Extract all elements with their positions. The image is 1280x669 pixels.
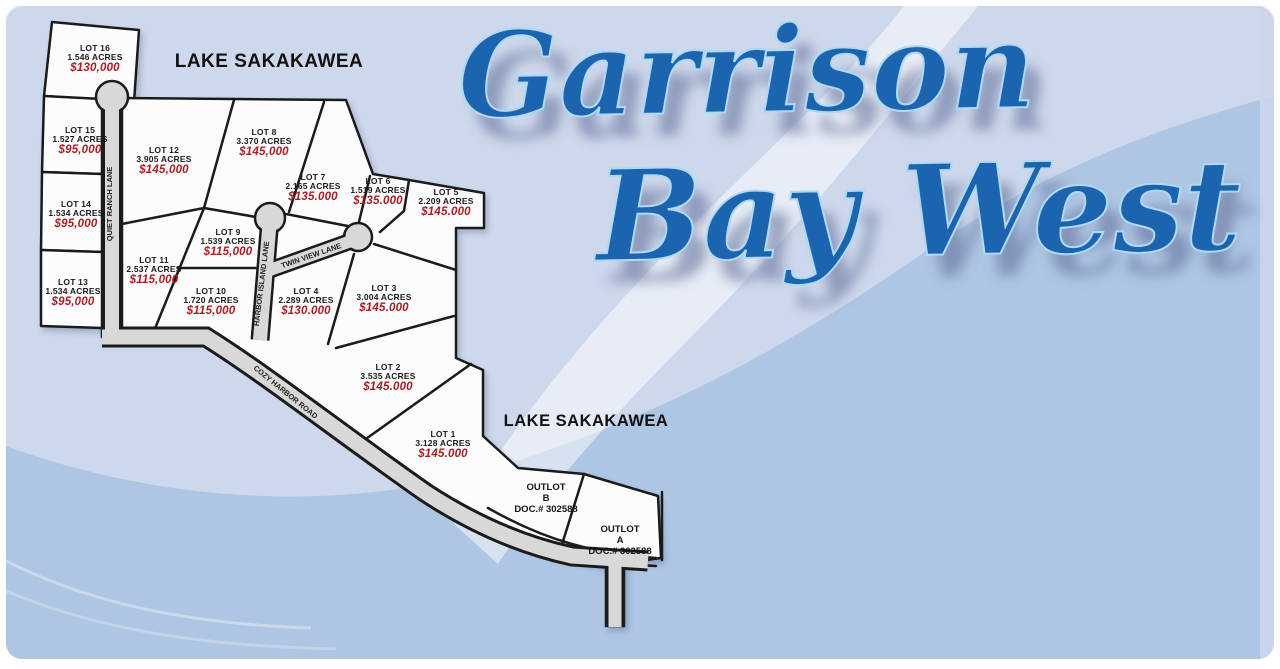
- lot-16-label: LOT 16 1.546 ACRES $130,000: [67, 44, 122, 75]
- title-bay-west: Bay West: [595, 142, 1243, 279]
- lot-3-label: LOT 3 3.004 ACRES $145.000: [356, 284, 411, 315]
- quiet-ranch-lane-label: QUIET RANCH LANE: [105, 167, 114, 242]
- lot-2-label: LOT 2 3.535 ACRES $145.000: [360, 363, 415, 394]
- lot-6-label: LOT 6 1.519 ACRES $135.000: [350, 177, 405, 208]
- lot-9-label: LOT 9 1.539 ACRES $115,000: [200, 228, 255, 259]
- outlot-b-label: OUTLOT B DOC.# 302588: [514, 483, 577, 516]
- lot-8-label: LOT 8 3.370 ACRES $145,000: [236, 128, 291, 159]
- lot-10-label: LOT 10 1.720 ACRES $115,000: [183, 287, 238, 318]
- lot-11-label: LOT 11 2.537 ACRES $115,000: [126, 256, 181, 287]
- lot-12-label: LOT 12 3.905 ACRES $145,000: [136, 146, 191, 177]
- right-edge-strip: [1260, 6, 1274, 659]
- lot-7-label: LOT 7 2.165 ACRES $135.000: [285, 173, 340, 204]
- lot-14-label: LOT 14 1.534 ACRES $95,000: [48, 200, 103, 231]
- title-garrison: Garrison: [457, 7, 1036, 135]
- lot-5-label: LOT 5 2.209 ACRES $145.000: [418, 188, 473, 219]
- lot-1-label: LOT 1 3.128 ACRES $145.000: [415, 430, 470, 461]
- lot-15-label: LOT 15 1.527 ACRES $95,000: [52, 126, 107, 157]
- outlot-a-label: OUTLOT A DOC.# 302588: [588, 525, 651, 558]
- lake-sakakawea-label-top: LAKE SAKAKAWEA: [175, 51, 364, 73]
- map-canvas: QUIET RANCH LANE HARBOR ISLAND LANE TWIN…: [6, 6, 1274, 659]
- lot-13-label: LOT 13 1.534 ACRES $95,000: [45, 278, 100, 309]
- plat-map-page: QUIET RANCH LANE HARBOR ISLAND LANE TWIN…: [0, 0, 1280, 669]
- lot-4-label: LOT 4 2.289 ACRES $130.000: [278, 287, 333, 318]
- lake-sakakawea-label-mid: LAKE SAKAKAWEA: [504, 412, 669, 431]
